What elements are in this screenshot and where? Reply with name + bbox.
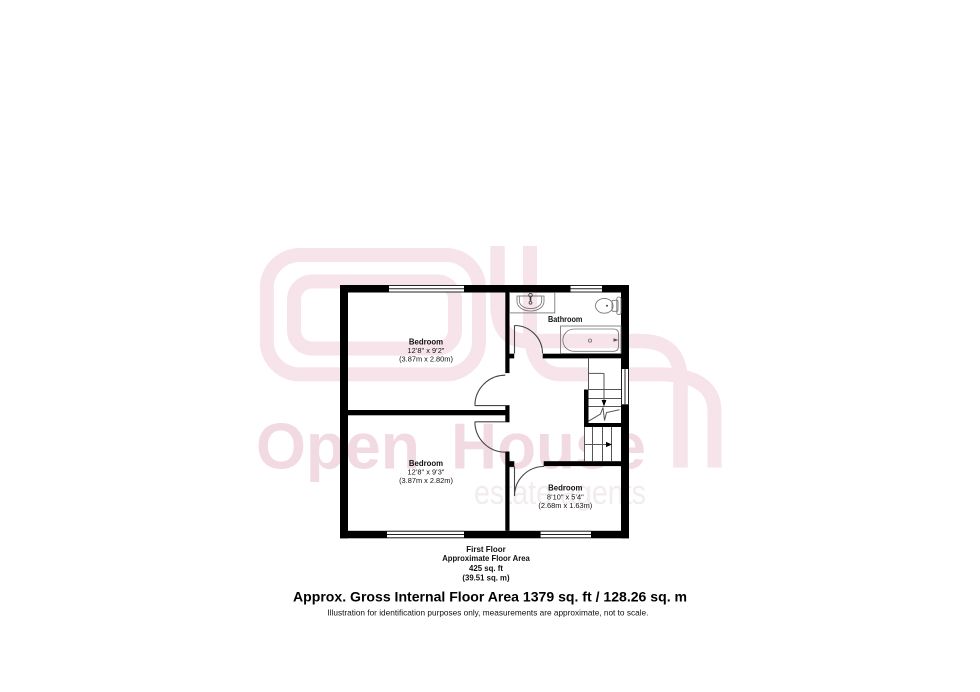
svg-text:Open: Open [256, 410, 420, 483]
svg-text:Bathroom: Bathroom [548, 315, 583, 324]
svg-text:425 sq. ft: 425 sq. ft [469, 564, 503, 573]
svg-text:Illustration for identificatio: Illustration for identification purposes… [327, 609, 648, 618]
svg-text:Bedroom: Bedroom [409, 337, 443, 346]
svg-text:First Floor: First Floor [466, 545, 506, 554]
svg-text:Approximate Floor Area: Approximate Floor Area [442, 554, 530, 563]
svg-text:Bedroom: Bedroom [548, 484, 582, 493]
svg-text:(2.68m x 1.63m): (2.68m x 1.63m) [538, 501, 592, 510]
svg-text:(39.51 sq. m): (39.51 sq. m) [462, 573, 509, 582]
svg-text:Approx. Gross Internal Floor A: Approx. Gross Internal Floor Area 1379 s… [293, 588, 687, 604]
svg-text:(3.87m x 2.80m): (3.87m x 2.80m) [399, 354, 453, 363]
svg-text:(3.87m x 2.82m): (3.87m x 2.82m) [399, 476, 453, 485]
